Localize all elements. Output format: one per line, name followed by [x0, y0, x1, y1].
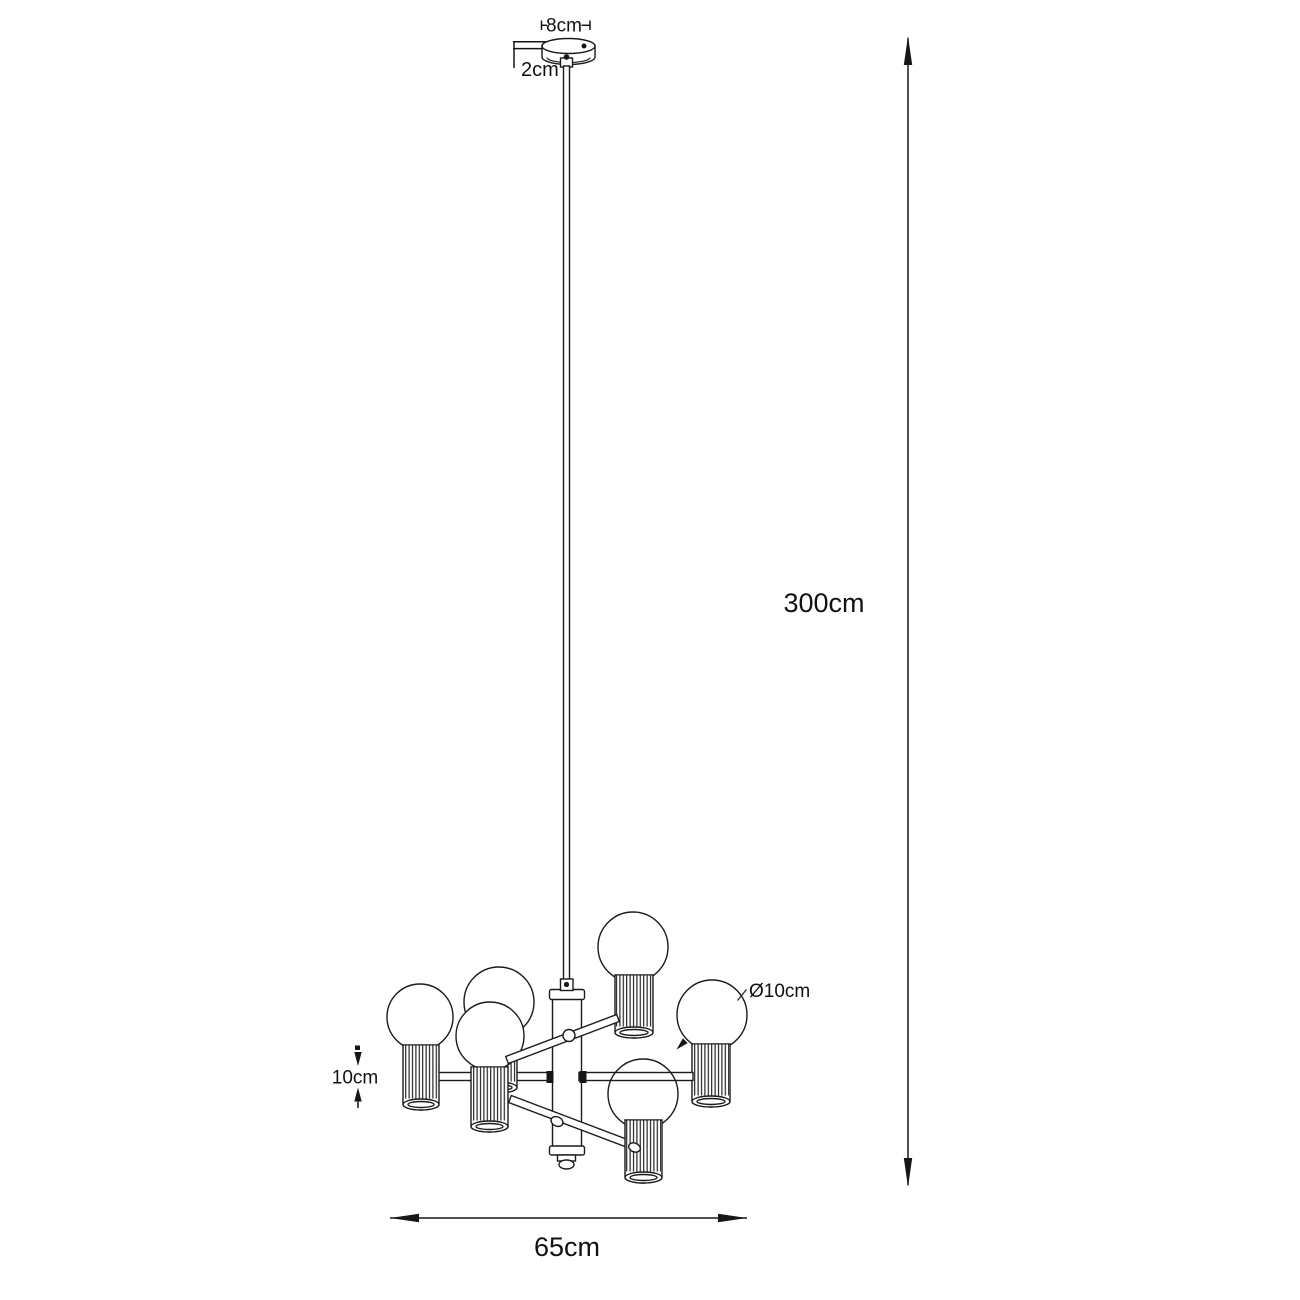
suspension-rod [564, 66, 570, 981]
bulb-diameter-label: Ø10cm [749, 981, 810, 1002]
bulb-front [608, 1059, 678, 1129]
shade-height-label: 10cm [332, 1068, 378, 1089]
bulb-far-left [387, 984, 453, 1050]
arm-junction-right [580, 1071, 587, 1083]
canopy-width-label: 8cm [546, 16, 582, 37]
arm-right [579, 1073, 693, 1081]
socket-right [692, 1044, 730, 1107]
socket-far-left [403, 1045, 439, 1110]
bulb-top [598, 912, 668, 982]
suspension-length-label: 300cm [783, 588, 864, 618]
arm-pivot-upper [563, 1030, 575, 1042]
dimension-shade-height: 10cm [332, 1046, 378, 1109]
dimension-canopy-width: 8cm [542, 16, 591, 37]
bulb-right [677, 980, 747, 1050]
canopy-screw-center [564, 54, 570, 60]
socket-top [615, 975, 653, 1038]
canopy-height-label: 2cm [521, 59, 559, 81]
dimension-fixture-width: 65cm [390, 1214, 747, 1262]
canopy-screw [582, 44, 587, 49]
pendant-lamp-diagram: 8cm 2cm 300cm Ø10cm 10cm 65cm [0, 0, 1300, 1300]
dimension-suspension-length: 300cm [783, 36, 912, 1187]
arm-junction-left [547, 1071, 554, 1083]
technical-drawing-canvas: 8cm 2cm 300cm Ø10cm 10cm 65cm [0, 0, 1300, 1300]
socket-front [625, 1120, 662, 1183]
socket-front-left [471, 1067, 508, 1132]
fixture-width-label: 65cm [534, 1232, 600, 1262]
